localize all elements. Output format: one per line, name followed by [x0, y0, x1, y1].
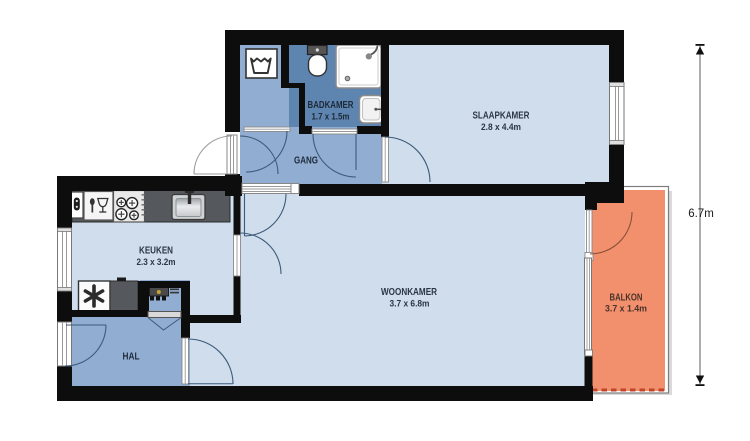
svg-text:HAL: HAL — [123, 352, 140, 363]
svg-text:BADKAMER: BADKAMER — [308, 100, 354, 111]
svg-text:KEUKEN: KEUKEN — [139, 246, 173, 257]
svg-text:1.7 x 1.5m: 1.7 x 1.5m — [312, 112, 350, 122]
svg-text:6.7m: 6.7m — [688, 208, 714, 220]
svg-text:2.8 x 4.4m: 2.8 x 4.4m — [481, 122, 521, 132]
svg-text:WOONKAMER: WOONKAMER — [381, 287, 437, 298]
svg-text:BALKON: BALKON — [610, 293, 643, 304]
svg-text:3.7 x 6.8m: 3.7 x 6.8m — [390, 299, 430, 309]
svg-text:2.3 x 3.2m: 2.3 x 3.2m — [137, 257, 176, 267]
svg-text:GANG: GANG — [294, 156, 318, 167]
svg-text:SLAAPKAMER: SLAAPKAMER — [473, 111, 530, 122]
svg-text:3.7 x 1.4m: 3.7 x 1.4m — [605, 304, 647, 314]
